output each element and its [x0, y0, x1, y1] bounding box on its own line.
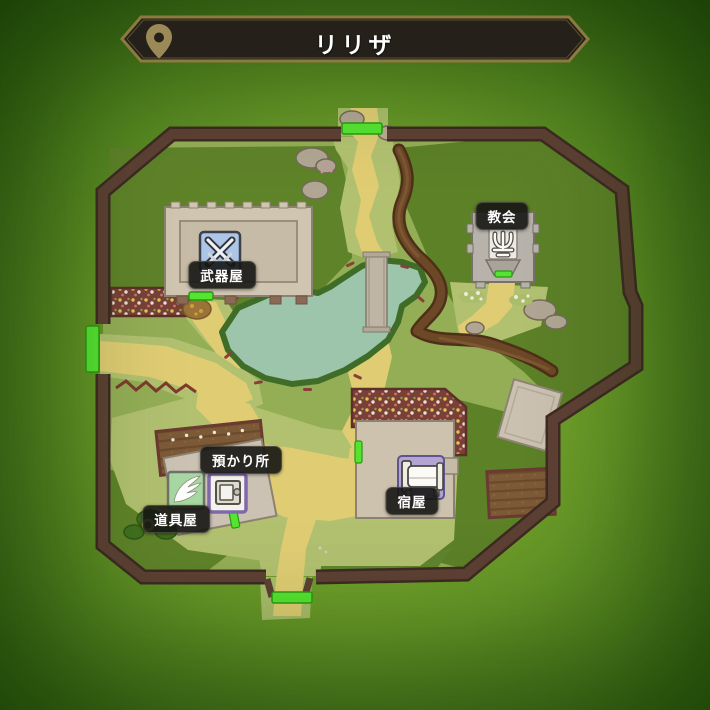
inn-entrance-marker [355, 441, 362, 463]
vault-icon[interactable] [209, 474, 246, 512]
storage-label[interactable]: 預かり所 [200, 446, 282, 474]
south-gate-marker [272, 592, 312, 603]
inn-label[interactable]: 宿屋 [386, 487, 439, 515]
west-gate-marker [86, 326, 99, 372]
stone-bridge [363, 252, 390, 332]
town-map [0, 0, 710, 710]
page-title: リリザ [205, 26, 505, 60]
weapon-shop-entrance-marker [189, 292, 213, 300]
church-symbol-icon[interactable] [489, 228, 517, 259]
item-shop-label[interactable]: 道具屋 [142, 505, 210, 533]
north-gate-marker [342, 123, 382, 134]
weapon-shop-label[interactable]: 武器屋 [188, 261, 256, 289]
wing-icon[interactable] [168, 472, 204, 509]
church-label[interactable]: 教会 [476, 202, 529, 230]
church-entrance-marker [495, 271, 512, 277]
map-screen: 武器屋 教会 預かり所 道具屋 宿屋 リリザ [0, 0, 710, 710]
